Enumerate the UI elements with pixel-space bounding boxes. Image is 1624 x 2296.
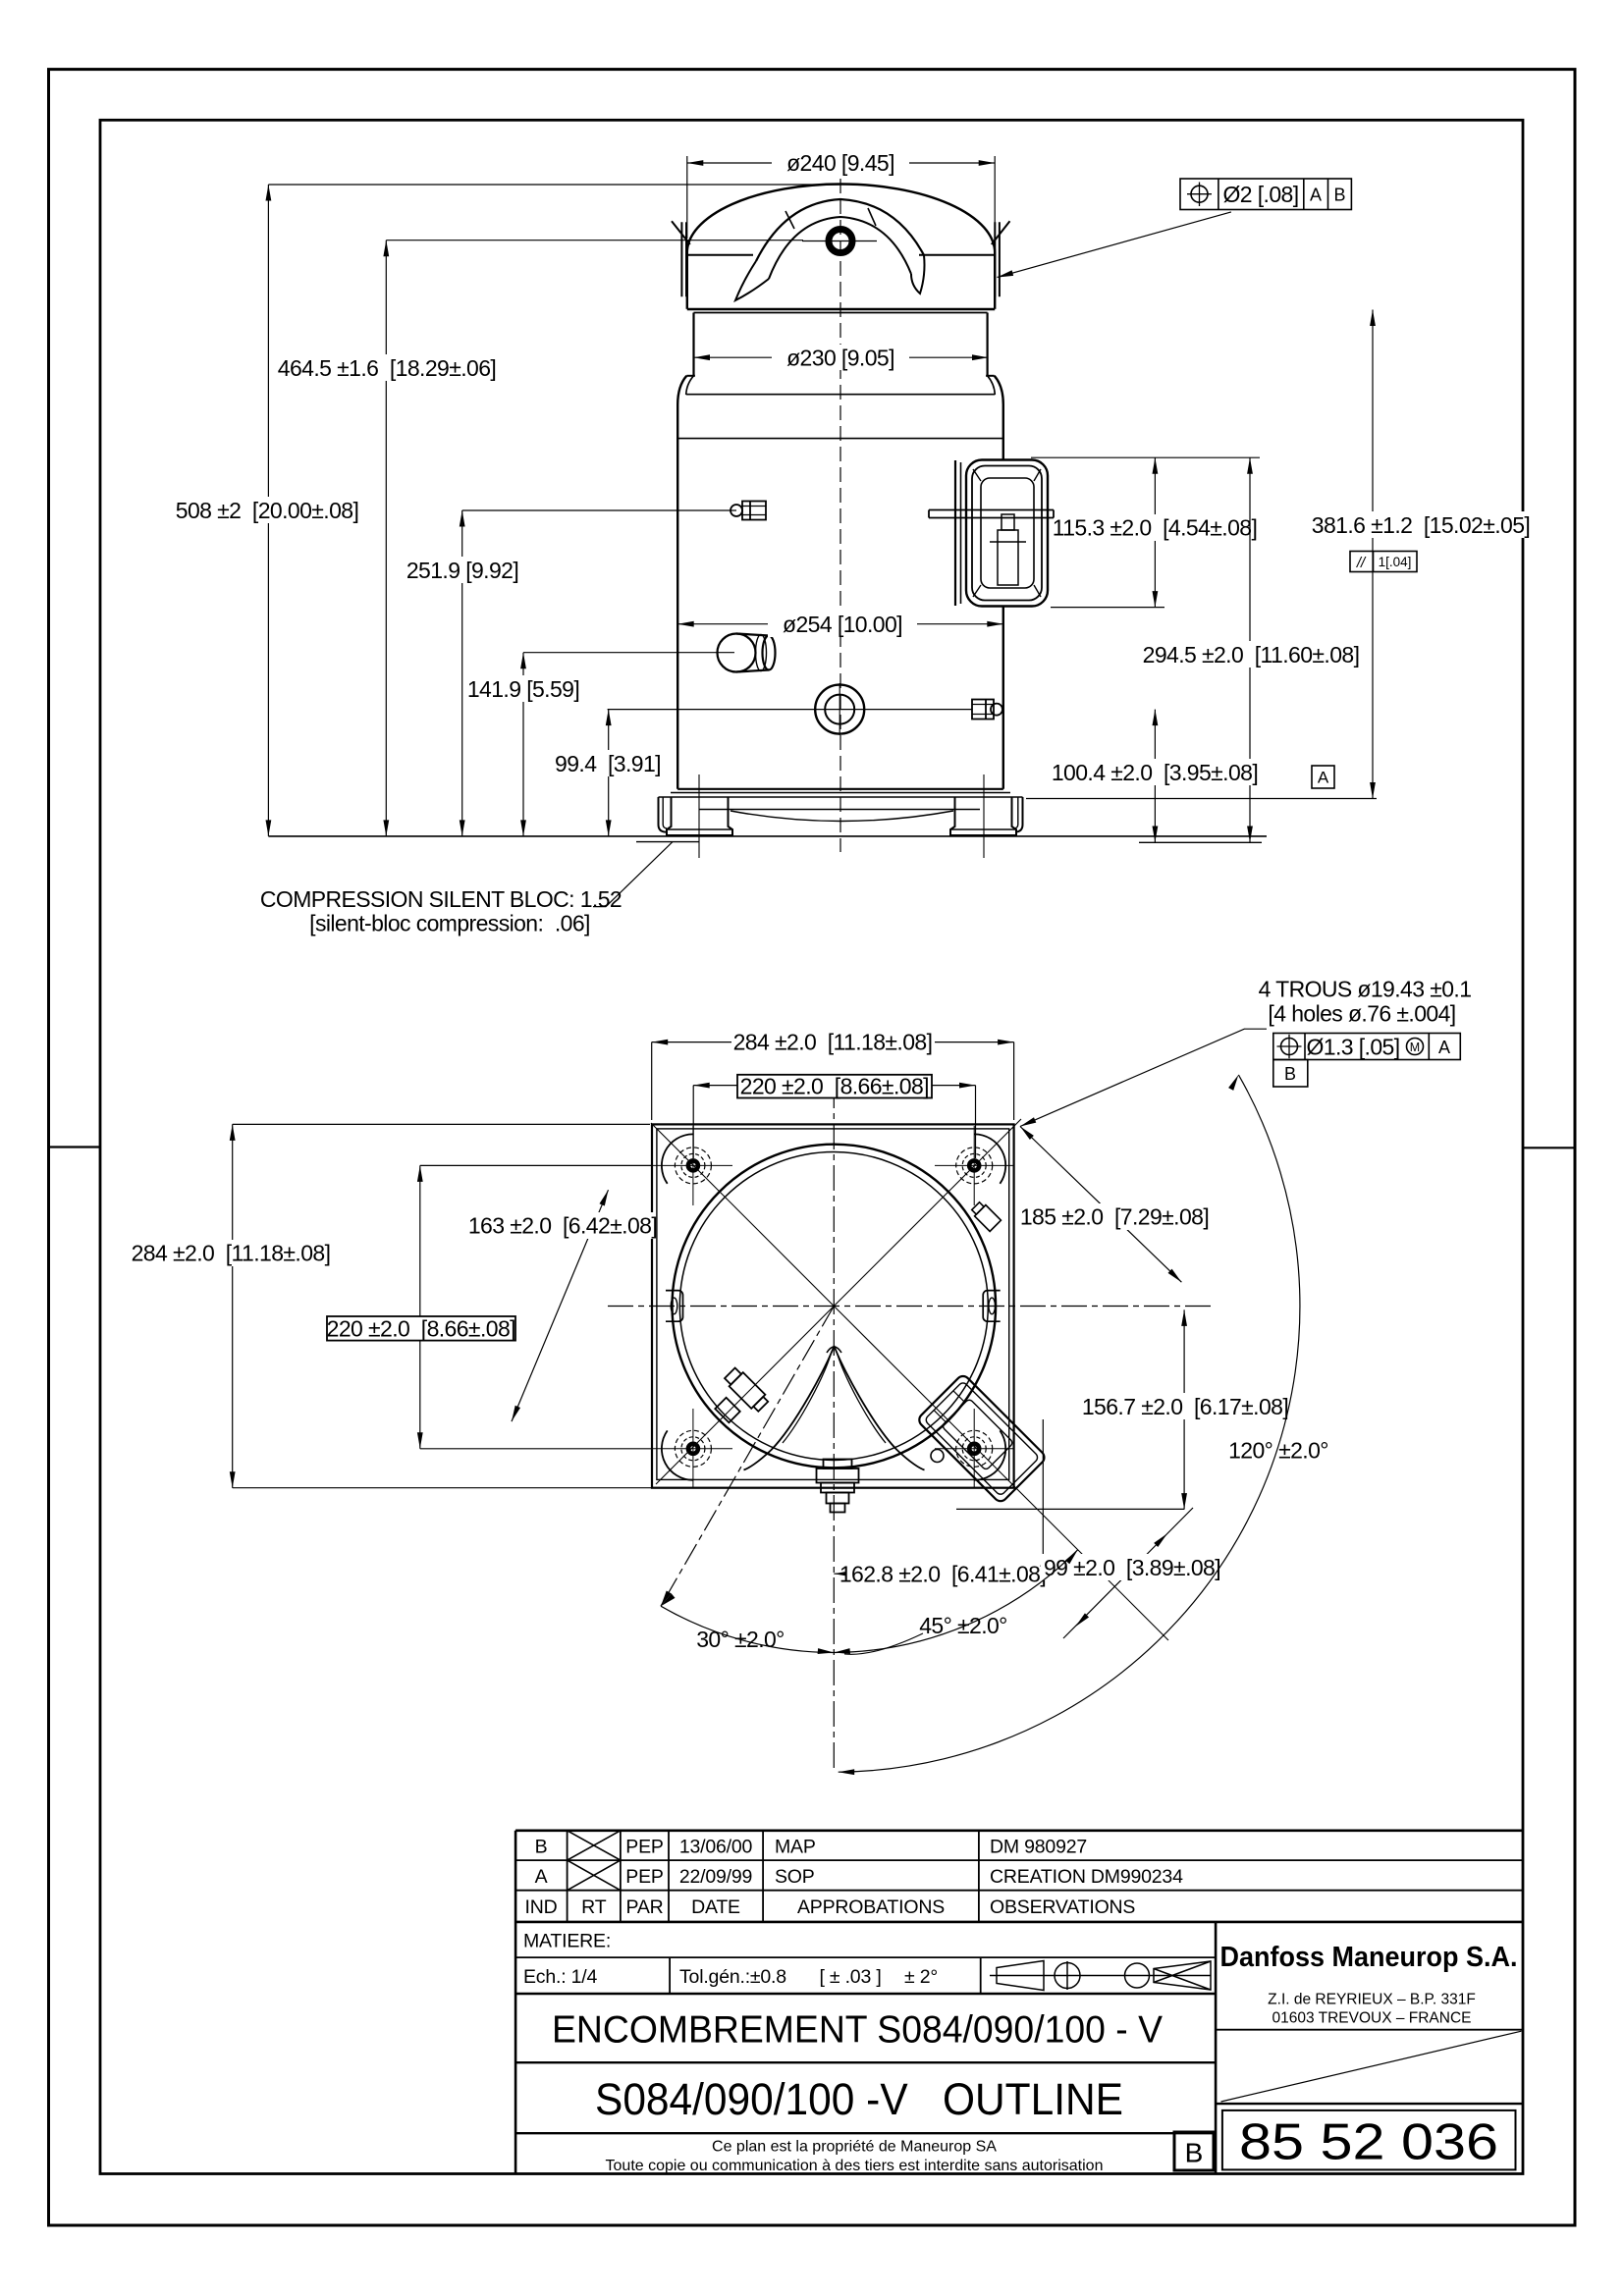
- svg-text:284 ±2.0 [11.18±.08]: 284 ±2.0 [11.18±.08]: [132, 1241, 331, 1266]
- svg-text:A: A: [1318, 768, 1329, 786]
- svg-text:MAP: MAP: [775, 1836, 816, 1857]
- svg-text:284 ±2.0 [11.18±.08]: 284 ±2.0 [11.18±.08]: [733, 1030, 933, 1055]
- svg-text:Ech.: 1/4: Ech.: 1/4: [523, 1966, 598, 1988]
- svg-text:163 ±2.0 [6.42±.08]: 163 ±2.0 [6.42±.08]: [468, 1213, 657, 1239]
- svg-text:± 2°: ± 2°: [904, 1966, 938, 1988]
- svg-text:PAR: PAR: [625, 1896, 663, 1918]
- svg-text:SOP: SOP: [775, 1866, 815, 1888]
- svg-text:251.9 [9.92]: 251.9 [9.92]: [406, 558, 518, 583]
- svg-text:381.6 ±1.2 [15.02±.05]: 381.6 ±1.2 [15.02±.05]: [1312, 512, 1530, 538]
- svg-text:[4 holes ø.76 ±.004]: [4 holes ø.76 ±.004]: [1268, 1000, 1455, 1026]
- svg-text:Ce plan est la propriété de Ma: Ce plan est la propriété de Maneurop SA: [712, 2139, 997, 2156]
- svg-text:COMPRESSION SILENT BLOC: 1.52: COMPRESSION SILENT BLOC: 1.52: [260, 886, 622, 912]
- svg-text:B: B: [1333, 185, 1345, 204]
- svg-text:100.4 ±2.0 [3.95±.08]: 100.4 ±2.0 [3.95±.08]: [1052, 760, 1258, 785]
- svg-text:Danfoss Maneurop S.A.: Danfoss Maneurop S.A.: [1220, 1942, 1518, 1973]
- svg-text:RT: RT: [581, 1896, 607, 1918]
- svg-text:CREATION DM990234: CREATION DM990234: [990, 1866, 1183, 1888]
- svg-text:162.8 ±2.0 [6.41±.08]: 162.8 ±2.0 [6.41±.08]: [839, 1561, 1046, 1586]
- svg-text:99.4 [3.91]: 99.4 [3.91]: [555, 751, 661, 776]
- svg-text:508 ±2 [20.00±.08]: 508 ±2 [20.00±.08]: [176, 498, 359, 523]
- svg-text:1[.04]: 1[.04]: [1379, 555, 1412, 569]
- svg-text:A: A: [535, 1866, 548, 1888]
- svg-text:120° ±2.0°: 120° ±2.0°: [1228, 1437, 1328, 1463]
- svg-text:ø240 [9.45]: ø240 [9.45]: [786, 150, 894, 176]
- svg-text:4 TROUS ø19.43 ±0.1: 4 TROUS ø19.43 ±0.1: [1259, 976, 1472, 1001]
- svg-text:185 ±2.0 [7.29±.08]: 185 ±2.0 [7.29±.08]: [1020, 1204, 1209, 1230]
- svg-text:S084/090/100 -V OUTLINE: S084/090/100 -V OUTLINE: [595, 2074, 1123, 2124]
- svg-text:M: M: [1410, 1041, 1420, 1054]
- svg-text:Z.I. de REYRIEUX – B.P. 331F: Z.I. de REYRIEUX – B.P. 331F: [1268, 1992, 1476, 2008]
- svg-text:115.3 ±2.0 [4.54±.08]: 115.3 ±2.0 [4.54±.08]: [1053, 515, 1258, 541]
- svg-text:464.5 ±1.6 [18.29±.06]: 464.5 ±1.6 [18.29±.06]: [278, 355, 496, 381]
- svg-text:B: B: [535, 1836, 548, 1857]
- svg-text:IND: IND: [525, 1896, 558, 1918]
- svg-text:220 ±2.0 [8.66±.08]: 220 ±2.0 [8.66±.08]: [327, 1315, 515, 1341]
- svg-text:Ø2 [.08]: Ø2 [.08]: [1222, 182, 1298, 207]
- svg-text:[silent-bloc compression: .06: [silent-bloc compression: .06]: [309, 911, 590, 936]
- svg-text:A: A: [1438, 1038, 1450, 1057]
- svg-text:B: B: [1284, 1064, 1296, 1084]
- svg-text:DM 980927: DM 980927: [990, 1836, 1087, 1857]
- svg-text:MATIERE:: MATIERE:: [523, 1930, 611, 1951]
- svg-text:Ø1.3 [.05]: Ø1.3 [.05]: [1306, 1035, 1399, 1060]
- svg-text:PEP: PEP: [625, 1836, 663, 1857]
- svg-text:294.5 ±2.0 [11.60±.08]: 294.5 ±2.0 [11.60±.08]: [1143, 642, 1360, 667]
- svg-text:[ ± .03 ]: [ ± .03 ]: [819, 1966, 881, 1988]
- svg-text:13/06/00: 13/06/00: [679, 1836, 753, 1857]
- svg-text:Tol.gén.:±0.8: Tol.gén.:±0.8: [679, 1966, 786, 1988]
- svg-text:156.7 ±2.0 [6.17±.08]: 156.7 ±2.0 [6.17±.08]: [1082, 1394, 1288, 1419]
- svg-text:PEP: PEP: [625, 1866, 663, 1888]
- svg-text:A: A: [1310, 185, 1322, 204]
- svg-text:141.9 [5.59]: 141.9 [5.59]: [467, 676, 579, 702]
- svg-text:22/09/99: 22/09/99: [679, 1866, 752, 1888]
- svg-text:ø254 [10.00]: ø254 [10.00]: [783, 612, 902, 637]
- svg-text:ø230 [9.05]: ø230 [9.05]: [786, 345, 894, 370]
- svg-text:APPROBATIONS: APPROBATIONS: [797, 1896, 945, 1918]
- svg-text:ENCOMBREMENT S084/090/100 - V: ENCOMBREMENT S084/090/100 - V: [552, 2009, 1163, 2052]
- svg-text:B: B: [1185, 2137, 1204, 2167]
- svg-text:220 ±2.0 [8.66±.08]: 220 ±2.0 [8.66±.08]: [740, 1074, 929, 1099]
- svg-text:45° ±2.0°: 45° ±2.0°: [919, 1613, 1007, 1638]
- svg-text:85 52 036: 85 52 036: [1239, 2114, 1498, 2171]
- svg-text:30° ±2.0°: 30° ±2.0°: [696, 1627, 785, 1652]
- svg-text:Toute copie ou communication à: Toute copie ou communication à des tiers…: [606, 2158, 1104, 2174]
- svg-text:OBSERVATIONS: OBSERVATIONS: [990, 1896, 1135, 1918]
- svg-text:DATE: DATE: [691, 1896, 740, 1918]
- svg-text:01603 TREVOUX – FRANCE: 01603 TREVOUX – FRANCE: [1272, 2010, 1471, 2027]
